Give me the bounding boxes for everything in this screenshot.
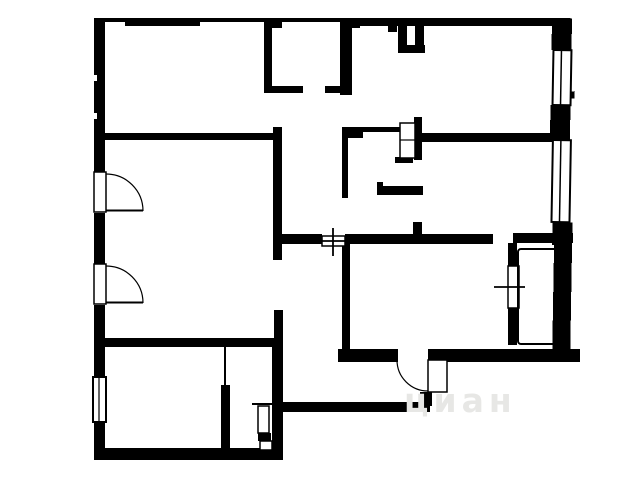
kitchen-left-wall: [340, 18, 352, 95]
corridor-wall-lower: [274, 310, 283, 340]
right-wall-lower: [552, 245, 572, 355]
window-left-lower: [93, 377, 106, 422]
right-wall: [546, 18, 576, 355]
hall-left-wall: [272, 340, 283, 460]
living-room-bottom-wall: [100, 338, 278, 347]
bottom-room-left-wall: [342, 244, 350, 362]
casement-window-1: [94, 172, 143, 212]
kitchen-bottom-wall: [422, 133, 558, 142]
middle-wall-a: [282, 234, 322, 244]
right-wall-block: [552, 222, 572, 245]
right-wall-corner: [551, 18, 572, 50]
storage-room-left-wall: [264, 22, 272, 90]
topleft-room-bottom-wall: [105, 133, 278, 140]
corridor-wall-upper: [273, 127, 282, 260]
right-wall-pier: [550, 105, 571, 140]
casement-window-2: [94, 264, 143, 304]
vent-shaft-bathroom: [400, 123, 415, 158]
watermark: циан: [404, 384, 584, 417]
loggia-window-cross: [494, 266, 525, 308]
top-wall-right: [340, 18, 558, 26]
top-wall-thick-patch: [125, 18, 200, 26]
window-right-upper: [553, 50, 572, 105]
middle-wall-b: [345, 234, 493, 244]
storage-room-bottom-wall-l: [264, 86, 303, 93]
bottom-left-wall: [94, 448, 283, 460]
window-right-lower: [551, 140, 570, 222]
